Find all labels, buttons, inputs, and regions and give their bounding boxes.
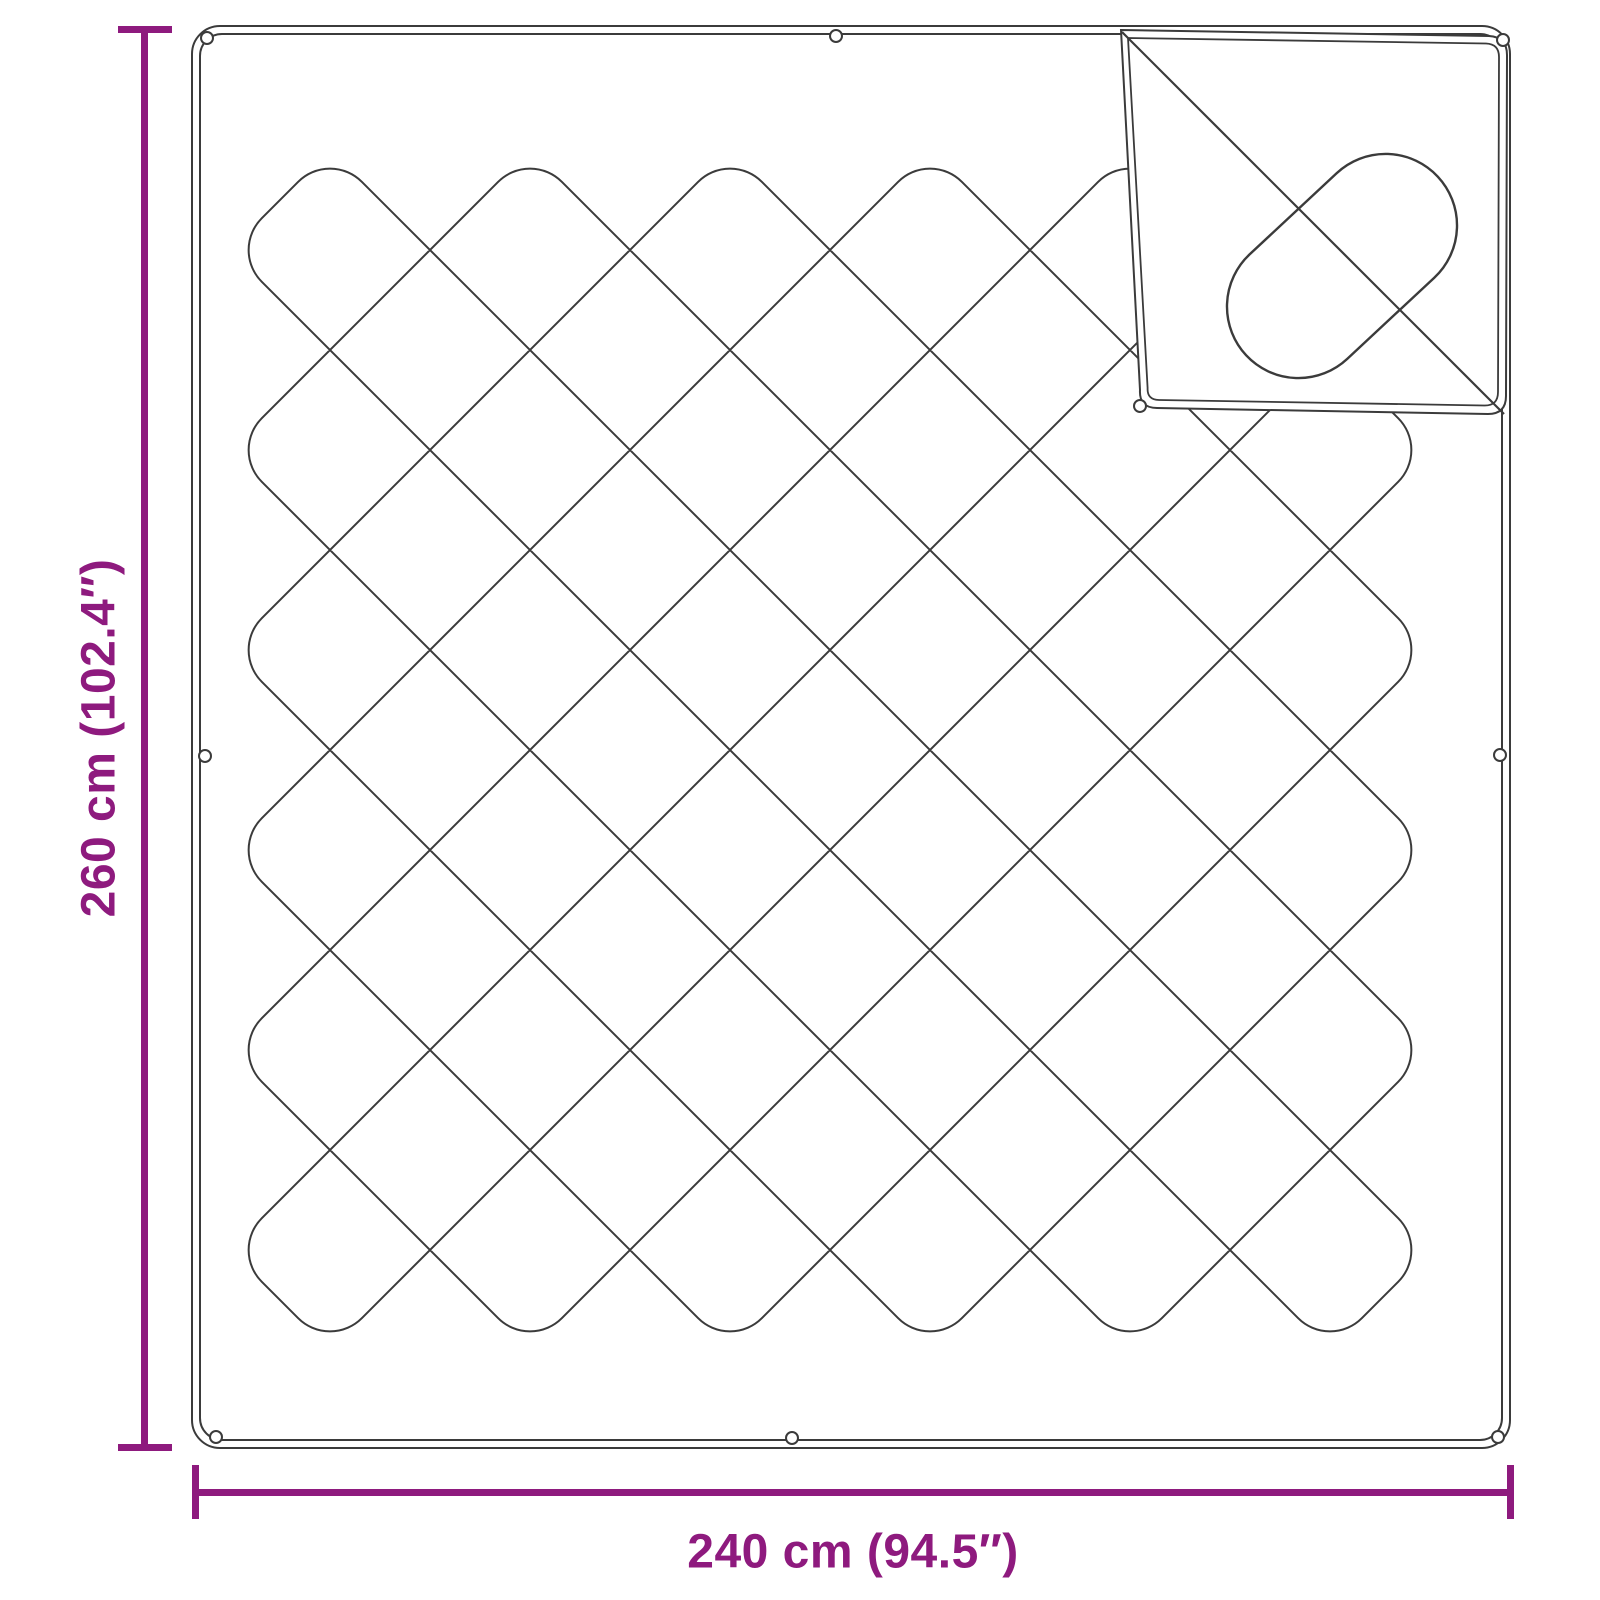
snap-fastener	[201, 32, 213, 44]
height-dimension-cap-bottom	[118, 1444, 172, 1451]
width-dimension-cap-right	[1507, 1465, 1514, 1519]
snap-fastener	[199, 750, 211, 762]
folded-corner	[1121, 30, 1507, 414]
height-dimension-line	[141, 29, 148, 1448]
snap-fastener	[1497, 34, 1509, 46]
snap-fastener	[830, 30, 842, 42]
snap-fastener	[1134, 400, 1146, 412]
width-dimension-label: 240 cm (94.5″)	[687, 1525, 1019, 1580]
blanket-diagram-canvas	[0, 0, 1600, 1600]
width-dimension-line	[196, 1489, 1511, 1496]
blanket-dimension-diagram: 260 cm (102.4″) 240 cm (94.5″)	[0, 0, 1600, 1600]
snap-fastener	[210, 1431, 222, 1443]
snap-fastener	[786, 1432, 798, 1444]
height-dimension-label: 260 cm (102.4″)	[72, 559, 127, 918]
snap-fastener	[1494, 749, 1506, 761]
snap-fastener	[1492, 1431, 1504, 1443]
